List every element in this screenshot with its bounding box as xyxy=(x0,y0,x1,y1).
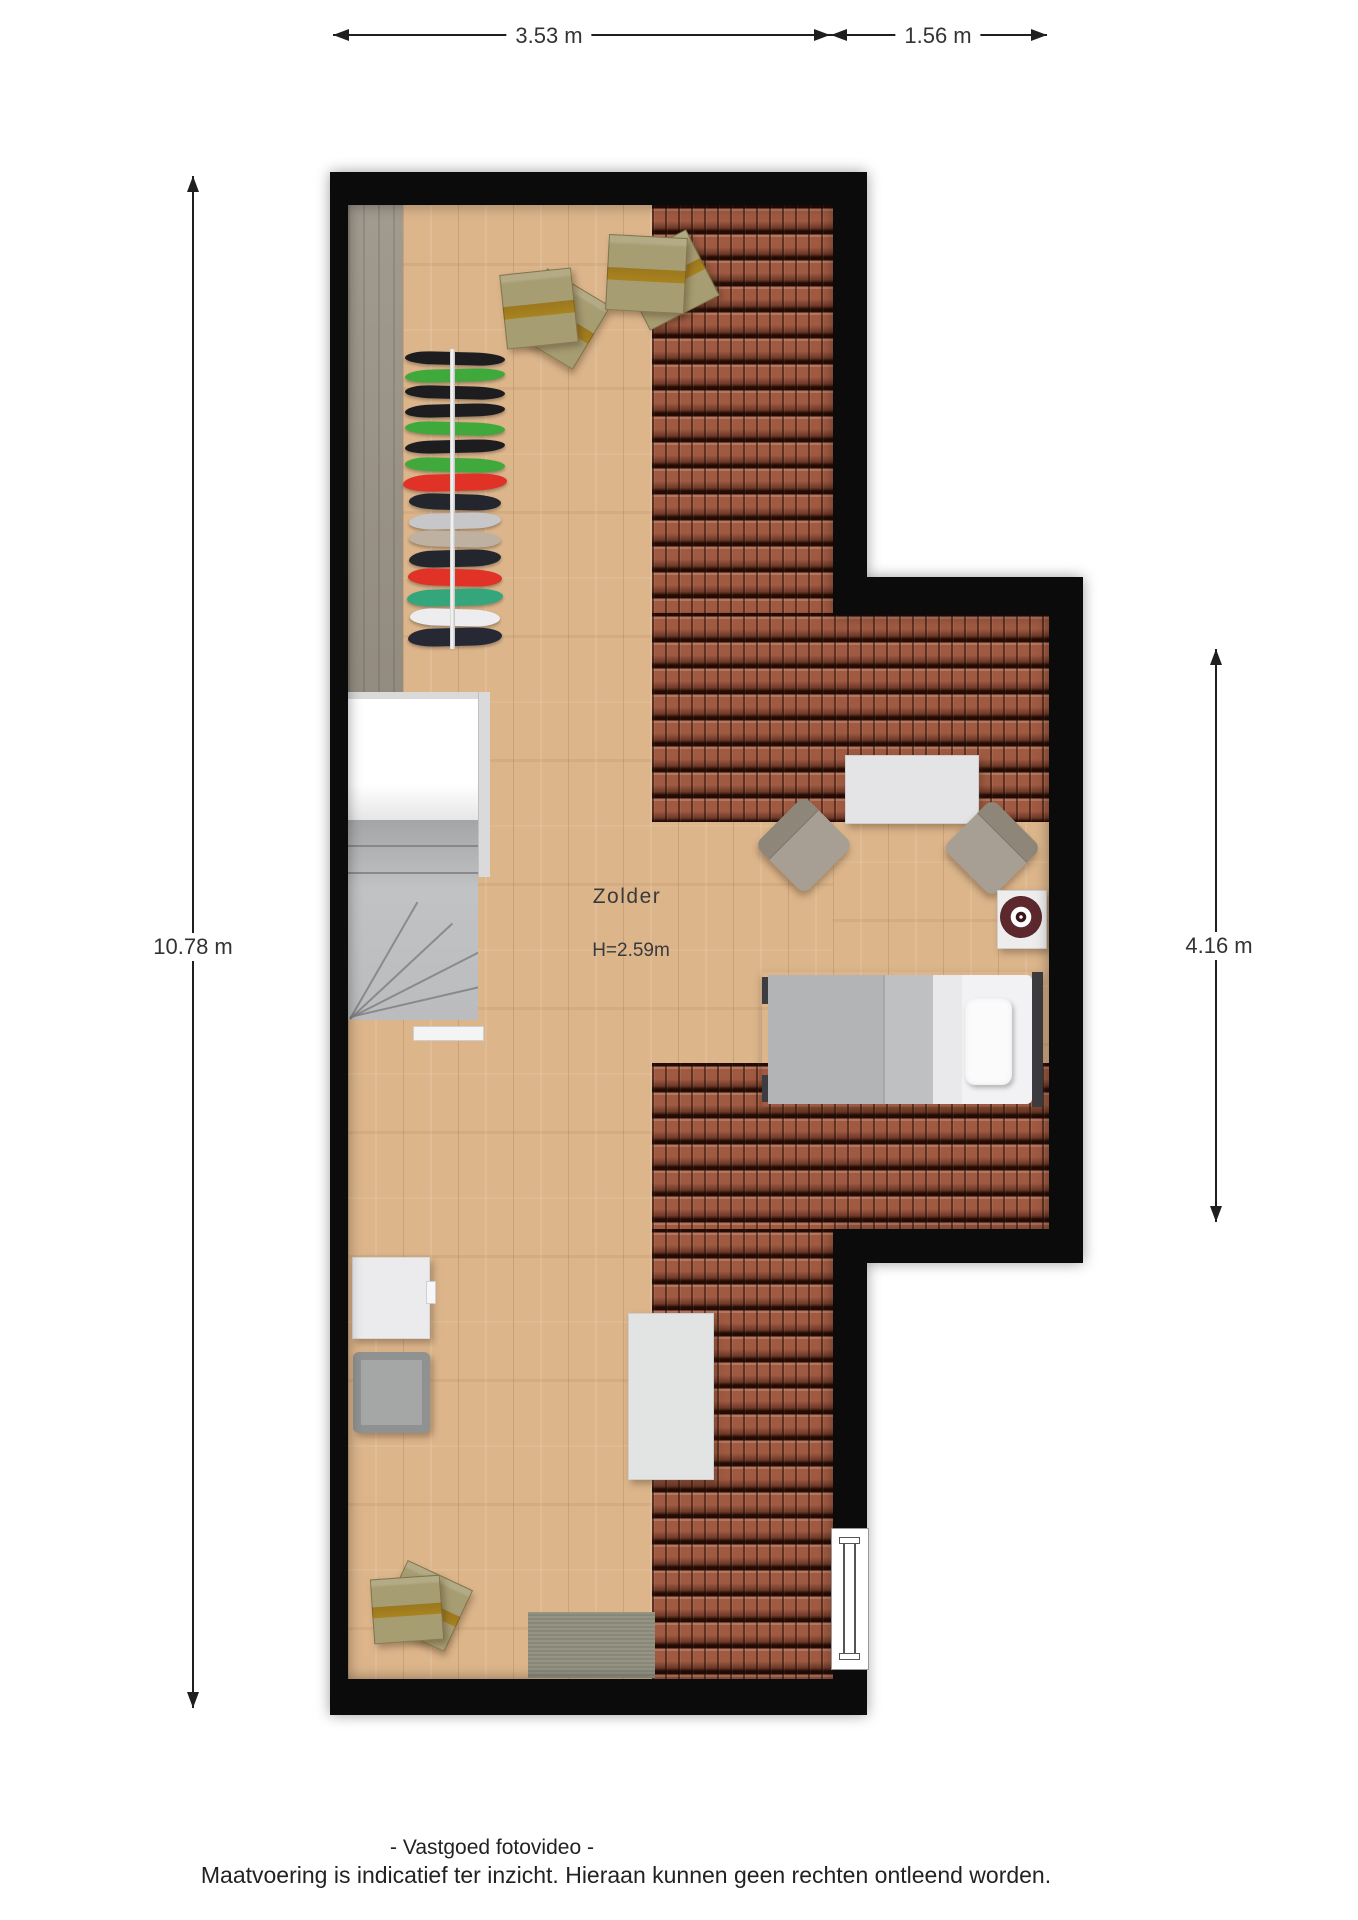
single-bed xyxy=(762,972,1043,1107)
record-player xyxy=(1000,896,1042,938)
moving-box-c xyxy=(370,1575,444,1645)
bed-frame-right xyxy=(1032,972,1043,1107)
moving-box-b xyxy=(605,234,688,314)
work-table xyxy=(628,1313,714,1480)
window-frame xyxy=(843,1541,856,1656)
cabinet-gray xyxy=(353,1352,430,1433)
stair-bottom-rail xyxy=(413,1026,484,1041)
roof-window xyxy=(831,1528,869,1670)
knee-wall-strip xyxy=(348,205,403,692)
staircase xyxy=(348,692,489,1040)
floorplan-page: 3.53 m 1.56 m 10.78 m 4.16 m Zolder H=2.… xyxy=(0,0,1358,1920)
footer-line1: - Vastgoed fotovideo - xyxy=(390,1836,594,1860)
bed-blanket xyxy=(768,975,933,1104)
wall-step-bottom xyxy=(833,1229,1083,1263)
wall-mid-right xyxy=(1049,577,1083,1263)
arrowhead-up-icon xyxy=(1210,649,1222,665)
clothes-item xyxy=(409,493,501,511)
wall-left xyxy=(330,172,348,1715)
rack-pole xyxy=(450,349,455,649)
stair-steps xyxy=(348,820,478,1020)
arrowhead-down-icon xyxy=(1210,1206,1222,1222)
dimension-right-label: 4.16 m xyxy=(1176,932,1261,960)
dimension-left-label: 10.78 m xyxy=(144,933,242,961)
wall-top xyxy=(330,172,867,205)
window-cap xyxy=(839,1653,860,1660)
arrowhead-up-icon xyxy=(187,176,199,192)
bed-pillow xyxy=(965,998,1012,1085)
footer-line2: Maatvoering is indicatief ter inzicht. H… xyxy=(201,1862,1051,1889)
room-height-label: H=2.59m xyxy=(592,940,670,962)
stair-landing xyxy=(348,699,478,820)
rug xyxy=(528,1612,655,1678)
wall-upper-right xyxy=(833,205,867,615)
wall-bottom xyxy=(330,1679,867,1715)
dimension-top-main-label: 3.53 m xyxy=(506,22,591,50)
clothes-item xyxy=(409,530,501,548)
arrowhead-right-icon xyxy=(1031,29,1047,41)
cabinet-white-handle xyxy=(426,1281,436,1304)
moving-box-a xyxy=(499,267,578,349)
bed-sheet xyxy=(933,975,962,1104)
cabinet-white xyxy=(352,1257,430,1339)
arrowhead-right-icon xyxy=(814,29,830,41)
arrowhead-down-icon xyxy=(187,1692,199,1708)
side-table xyxy=(845,755,979,824)
wall-step-top xyxy=(833,577,1083,615)
arrowhead-left-icon xyxy=(333,29,349,41)
room-label: Zolder xyxy=(593,885,662,909)
window-cap xyxy=(839,1537,860,1544)
stair-right-rail xyxy=(478,692,490,877)
arrowhead-left-icon xyxy=(831,29,847,41)
clothes-item xyxy=(408,568,502,587)
dimension-top-annex-label: 1.56 m xyxy=(895,22,980,50)
clothes-item xyxy=(410,608,500,627)
